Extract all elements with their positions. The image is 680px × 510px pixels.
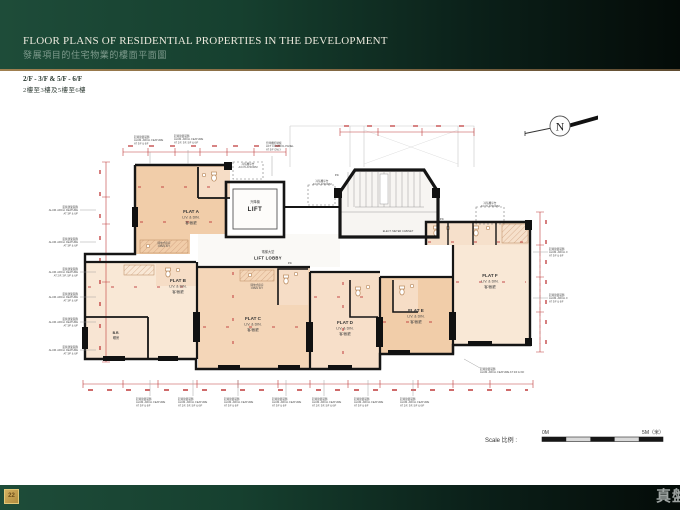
svg-text:客/飯廳: 客/飯廳 <box>484 284 496 289</box>
flat-c-label: FLAT C <box>245 316 262 321</box>
svg-text:OPEN KIT.: OPEN KIT. <box>158 244 171 248</box>
svg-text:鋁質建築裝飾ALUM. ARCH. FEATUREAT 2/: 鋁質建築裝飾ALUM. ARCH. FEATUREAT 2/F, 3/F, 5/… <box>178 397 207 407</box>
svg-text:睡房: 睡房 <box>113 335 119 340</box>
bedroom-label: B.R. <box>113 331 120 335</box>
svg-text:鋁質建築裝飾ALUM. ARCH. FEATUREAT 3/: 鋁質建築裝飾ALUM. ARCH. FEATUREAT 3/F & 6/F <box>549 247 568 257</box>
svg-text:LIV. & DIN.: LIV. & DIN. <box>336 327 353 331</box>
page-number-badge: 22 <box>4 489 19 504</box>
svg-text:客/飯廳: 客/飯廳 <box>410 319 422 324</box>
scale-zero: 0M <box>542 430 549 436</box>
svg-text:LIV. & DIN.: LIV. & DIN. <box>244 323 261 327</box>
flat-f-label: FLAT F <box>482 273 498 278</box>
floor-plan: FLAT A LIV. & DIN. 客/飯廳 FLAT B LIV. & DI… <box>28 112 568 442</box>
brochure-page: FLOOR PLANS OF RESIDENTIAL PROPERTIES IN… <box>0 0 680 510</box>
svg-text:鋁質建築裝飾ALUM. ARCH. FEATUREAT 3/: 鋁質建築裝飾ALUM. ARCH. FEATUREAT 3/F & 6/F <box>49 345 79 355</box>
lift-lobby-label: LIFT LOBBY <box>254 256 282 261</box>
lift-lobby-label-zh: 電梯大堂 <box>262 249 275 254</box>
page-title-chinese: 發展項目的住宅物業的樓面平面圖 <box>23 48 167 61</box>
svg-text:鋁質建築裝飾ALUM. ARCH. FEATUREAT 3/: 鋁質建築裝飾ALUM. ARCH. FEATUREAT 3/F & 6/F <box>49 292 79 302</box>
svg-text:鋁質建築裝飾ALUM. ARCH. FEATUREAT 3/: 鋁質建築裝飾ALUM. ARCH. FEATUREAT 3/F & 6/F <box>49 237 79 247</box>
svg-text:客/飯廳: 客/飯廳 <box>247 327 259 332</box>
svg-text:鋁質建築裝飾ALUM. ARCH. FEATUREAT 2/: 鋁質建築裝飾ALUM. ARCH. FEATUREAT 2/F, 3/F, 5/… <box>312 397 341 407</box>
svg-text:客/飯廳: 客/飯廳 <box>339 331 351 336</box>
svg-text:LIV. & DIN.: LIV. & DIN. <box>407 315 424 319</box>
page-title: FLOOR PLANS OF RESIDENTIAL PROPERTIES IN… <box>23 35 388 47</box>
floor-range-en: 2/F - 3/F & 5/F - 6/F <box>23 75 82 83</box>
developer-logo: 真盤 <box>656 485 680 506</box>
flat-a-label: FLAT A <box>183 209 199 214</box>
svg-text:OPEN KIT.: OPEN KIT. <box>251 286 264 290</box>
flat-e-label: FLAT E <box>408 308 424 313</box>
svg-text:冷氣機平台A/C PLATFORM: 冷氣機平台A/C PLATFORM <box>313 179 332 186</box>
lift-label: LIFT <box>248 207 263 213</box>
svg-text:鋁質建築裝飾ALUM. ARCH. FEATUREAT 3/: 鋁質建築裝飾ALUM. ARCH. FEATUREAT 3/F & 6/F <box>272 397 301 407</box>
scale-five: 5M（米） <box>642 429 664 436</box>
svg-text:客/飯廳: 客/飯廳 <box>172 289 184 294</box>
svg-text:鋁質建築裝飾ALUM. ARCH. FEATUREAT 3/: 鋁質建築裝飾ALUM. ARCH. FEATUREAT 3/F & 6/F <box>136 397 165 407</box>
header-band: FLOOR PLANS OF RESIDENTIAL PROPERTIES IN… <box>0 0 680 69</box>
svg-text:客/飯廳: 客/飯廳 <box>185 220 197 225</box>
svg-text:P.D.: P.D. <box>440 218 445 221</box>
flat-d-label: FLAT D <box>337 320 354 325</box>
meter-cabinet-label: ELECT. METER CABINET <box>383 229 414 233</box>
svg-text:鋁質建築裝飾ALUM. ARCH. FEATURE AT 3: 鋁質建築裝飾ALUM. ARCH. FEATURE AT 3/F & 6/F <box>480 367 525 374</box>
pipe-duct-label: P.D. <box>288 262 293 265</box>
ac-platform-callout: 冷氣機平台A/C PLATFORM <box>239 162 258 169</box>
svg-text:鋁質建築裝飾ALUM. ARCH. FEATUREAT 3/: 鋁質建築裝飾ALUM. ARCH. FEATUREAT 3/F & 6/F <box>49 317 79 327</box>
svg-text:LIV. & DIN.: LIV. & DIN. <box>481 280 498 284</box>
bronze-divider <box>0 69 680 71</box>
svg-text:冷氣機平台A/C PLATFORM: 冷氣機平台A/C PLATFORM <box>481 201 500 208</box>
svg-text:鋁質建築裝飾ALUM. ARCH. FEATUREAT 2/: 鋁質建築裝飾ALUM. ARCH. FEATUREAT 2/F, 3/F, 5/… <box>49 267 79 277</box>
svg-text:鋁質建築裝飾ALUM. ARCH. FEATUREAT 3/: 鋁質建築裝飾ALUM. ARCH. FEATUREAT 3/F & 6/F <box>549 293 568 303</box>
footer-band: 22 真盤 <box>0 485 680 510</box>
svg-text:鋁質建築裝飾ALUM. ARCH. FEATUREAT 2/: 鋁質建築裝飾ALUM. ARCH. FEATUREAT 2/F, 3/F, 5/… <box>174 134 203 144</box>
svg-text:鋁質建築裝飾ALUM. ARCH. FEATUREAT 3/: 鋁質建築裝飾ALUM. ARCH. FEATUREAT 3/F & 6/F <box>354 397 383 407</box>
floor-range-zh: 2樓至3樓及5樓至6樓 <box>23 84 86 94</box>
svg-text:鋁質建築裝飾ALUM. ARCH. FEATUREAT 3/: 鋁質建築裝飾ALUM. ARCH. FEATUREAT 3/F & 6/F <box>224 397 253 407</box>
svg-text:P.D.: P.D. <box>335 174 340 177</box>
svg-text:LIV. & DIN.: LIV. & DIN. <box>182 216 199 220</box>
lift-label-zh: 升降機 <box>250 199 260 204</box>
svg-text:鋁質建築裝飾ALUM. ARCH. FEATUREAT 3/: 鋁質建築裝飾ALUM. ARCH. FEATUREAT 3/F & 6/F <box>134 135 163 145</box>
svg-text:鋁質建築裝飾ALUM. ARCH. FEATUREAT 2/: 鋁質建築裝飾ALUM. ARCH. FEATUREAT 2/F, 3/F, 5/… <box>400 397 429 407</box>
scale-bar: Scale 比例 : 0M 5M（米） <box>485 426 675 450</box>
svg-text:鋁質建築裝飾ALUM. ARCH. FEATUREAT 3/: 鋁質建築裝飾ALUM. ARCH. FEATUREAT 3/F & 6/F <box>49 205 79 215</box>
flat-b-label: FLAT B <box>170 278 187 283</box>
svg-text:LIV. & DIN.: LIV. & DIN. <box>169 285 186 289</box>
scale-label: Scale 比例 : <box>485 436 517 444</box>
